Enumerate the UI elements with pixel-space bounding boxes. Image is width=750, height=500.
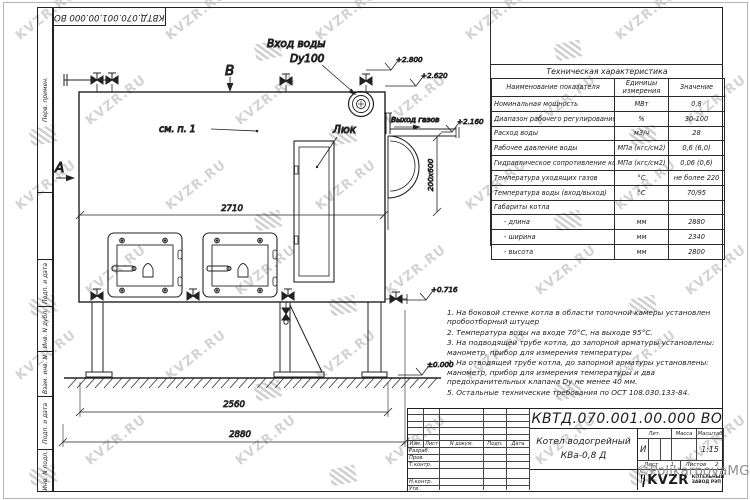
valve-icon	[187, 289, 199, 300]
spec-row: Габариты котла	[492, 200, 725, 215]
doc-number: КВТД.070.001.00.000 ВО	[530, 409, 724, 429]
gas-outlet: Выход газов	[384, 113, 459, 230]
elev-label: +2.160	[457, 117, 484, 126]
inlet-callout: Вход воды Dy100	[267, 38, 356, 95]
note-item: 2. Температура воды на входе 70°С, на вы…	[447, 328, 735, 337]
scale-value: 1:15	[697, 439, 724, 461]
part-name: Котел водогрейный КВа-0,8 Д	[530, 429, 638, 469]
revision-grid	[408, 409, 530, 441]
copyright-watermark: ©PolikarpovaMG2021	[636, 463, 750, 479]
spec-row: - длинамм2880	[492, 215, 725, 230]
col-header: Лист	[424, 441, 440, 448]
elev-label: +2.620	[421, 71, 448, 80]
note-item: 4. На отводящей трубе котла, до запорной…	[447, 358, 735, 386]
valve-icon	[385, 292, 407, 304]
spec-header-row: Наименование показателя Единицы измерени…	[492, 79, 725, 97]
note-item: 1. На боковой стенке котла в области топ…	[447, 308, 735, 327]
dim-2710-label: 2710	[221, 204, 243, 214]
valve-icon	[106, 73, 118, 92]
title-block-left: Изм. Лист N докум. Подп. Дата Разраб. Пр…	[408, 409, 530, 490]
svg-text:Dy100: Dy100	[290, 53, 325, 65]
lit-value: И	[638, 439, 649, 461]
signature-row	[408, 469, 530, 479]
dimension-duct: 200х600	[426, 133, 441, 216]
dim-duct-label: 200х600	[426, 158, 435, 191]
view-label-a: А	[54, 160, 75, 181]
technical-notes: 1. На боковой стенке котла в области топ…	[447, 308, 735, 398]
lit-value-row: И 1:15	[638, 439, 724, 461]
ground-line	[64, 378, 441, 388]
hatch-callout: Люк	[316, 124, 357, 168]
spec-row: Расход водым3/ч28	[492, 126, 725, 141]
col-header: Изм.	[408, 441, 424, 448]
drain-valve-icon	[282, 302, 290, 324]
note-item: 3. На подводящей трубе котла, до запорно…	[447, 338, 735, 357]
part-name-line1: Котел водогрейный	[530, 436, 637, 450]
part-name-line2: КВа-0,8 Д	[530, 450, 637, 464]
title-block: Изм. Лист N докум. Подп. Дата Разраб. Пр…	[407, 408, 723, 492]
note-ref-callout: см. п. 1	[159, 124, 258, 135]
dimension-2710: 2710	[76, 204, 388, 219]
spec-row: Температура уходящих газов°Сне более 220	[492, 170, 725, 185]
svg-text:см. п. 1: см. п. 1	[159, 124, 196, 135]
mass-value	[672, 439, 697, 461]
spec-row: - ширинамм2340	[492, 230, 725, 245]
valve-icon	[282, 289, 294, 300]
lit-header: Лит.	[638, 429, 672, 439]
svg-text:В: В	[225, 63, 234, 79]
col-header: Подп.	[484, 441, 507, 448]
valve-icon	[280, 74, 292, 92]
signature-row: Т.контр.	[408, 462, 530, 469]
furnace-door-left	[108, 233, 182, 297]
hatch-door	[294, 141, 334, 282]
svg-text:А: А	[54, 160, 64, 176]
mass-header: Масса	[672, 429, 697, 439]
spec-row: Рабочее давление водыМПа (кгс/см2)0,6 (6…	[492, 141, 725, 156]
empty-cell	[530, 469, 638, 490]
spec-table: Наименование показателя Единицы измерени…	[491, 78, 725, 260]
drawing-sheet: KVZR.RUKVZR.RUKVZR.RUKVZR.RUKVZR.RUKVZR.…	[0, 0, 750, 500]
col-header: N докум.	[440, 441, 484, 448]
lit-header-row: Лит. Масса Масштаб	[638, 429, 724, 439]
spec-row: Номинальная мощностьМВт0,8	[492, 97, 725, 112]
bottom-valves	[91, 289, 407, 324]
signature-row: Н.контр.	[408, 479, 530, 486]
spec-row: Гидравлическое сопротивление котлаМПа (к…	[492, 156, 725, 171]
signature-row: Разраб.	[408, 448, 530, 455]
svg-text:Вход воды: Вход воды	[267, 38, 326, 50]
valve-icon	[91, 73, 103, 92]
spec-spacer	[491, 7, 723, 65]
valve-icon	[360, 74, 372, 92]
svg-text:Люк: Люк	[332, 124, 357, 136]
dim-2560-label: 2560	[223, 400, 245, 410]
top-valves	[64, 73, 372, 92]
scale-header: Масштаб	[697, 429, 724, 439]
elev-label: +0.716	[431, 285, 458, 294]
revision-header-row: Изм. Лист N докум. Подп. Дата	[408, 441, 530, 448]
spec-row: Температура воды (вход/выход)°С70/95	[492, 185, 725, 200]
spec-row: - высотамм2800	[492, 244, 725, 259]
view-label-b: В	[225, 63, 234, 92]
dimension-2560: 2560	[76, 382, 392, 417]
note-item: 5. Остальные технические требования по О…	[447, 388, 735, 397]
dim-2880-label: 2880	[229, 430, 251, 440]
furnace-door-right	[203, 233, 277, 297]
signature-row: Утв.	[408, 486, 530, 490]
water-inlet-flange	[349, 92, 374, 117]
valve-icon	[91, 289, 103, 300]
boiler-supports	[86, 302, 387, 377]
spec-row: Диапазон рабочего регулирования%30-100	[492, 111, 725, 126]
col-header: Дата	[507, 441, 530, 448]
elev-label: +2.800	[396, 55, 423, 64]
signature-row: Пров.	[408, 455, 530, 462]
gas-outlet-label: Выход газов	[391, 115, 439, 124]
spec-table-title: Техническая характеристика	[491, 65, 723, 78]
spec-table-block: Техническая характеристика Наименование …	[490, 7, 723, 246]
